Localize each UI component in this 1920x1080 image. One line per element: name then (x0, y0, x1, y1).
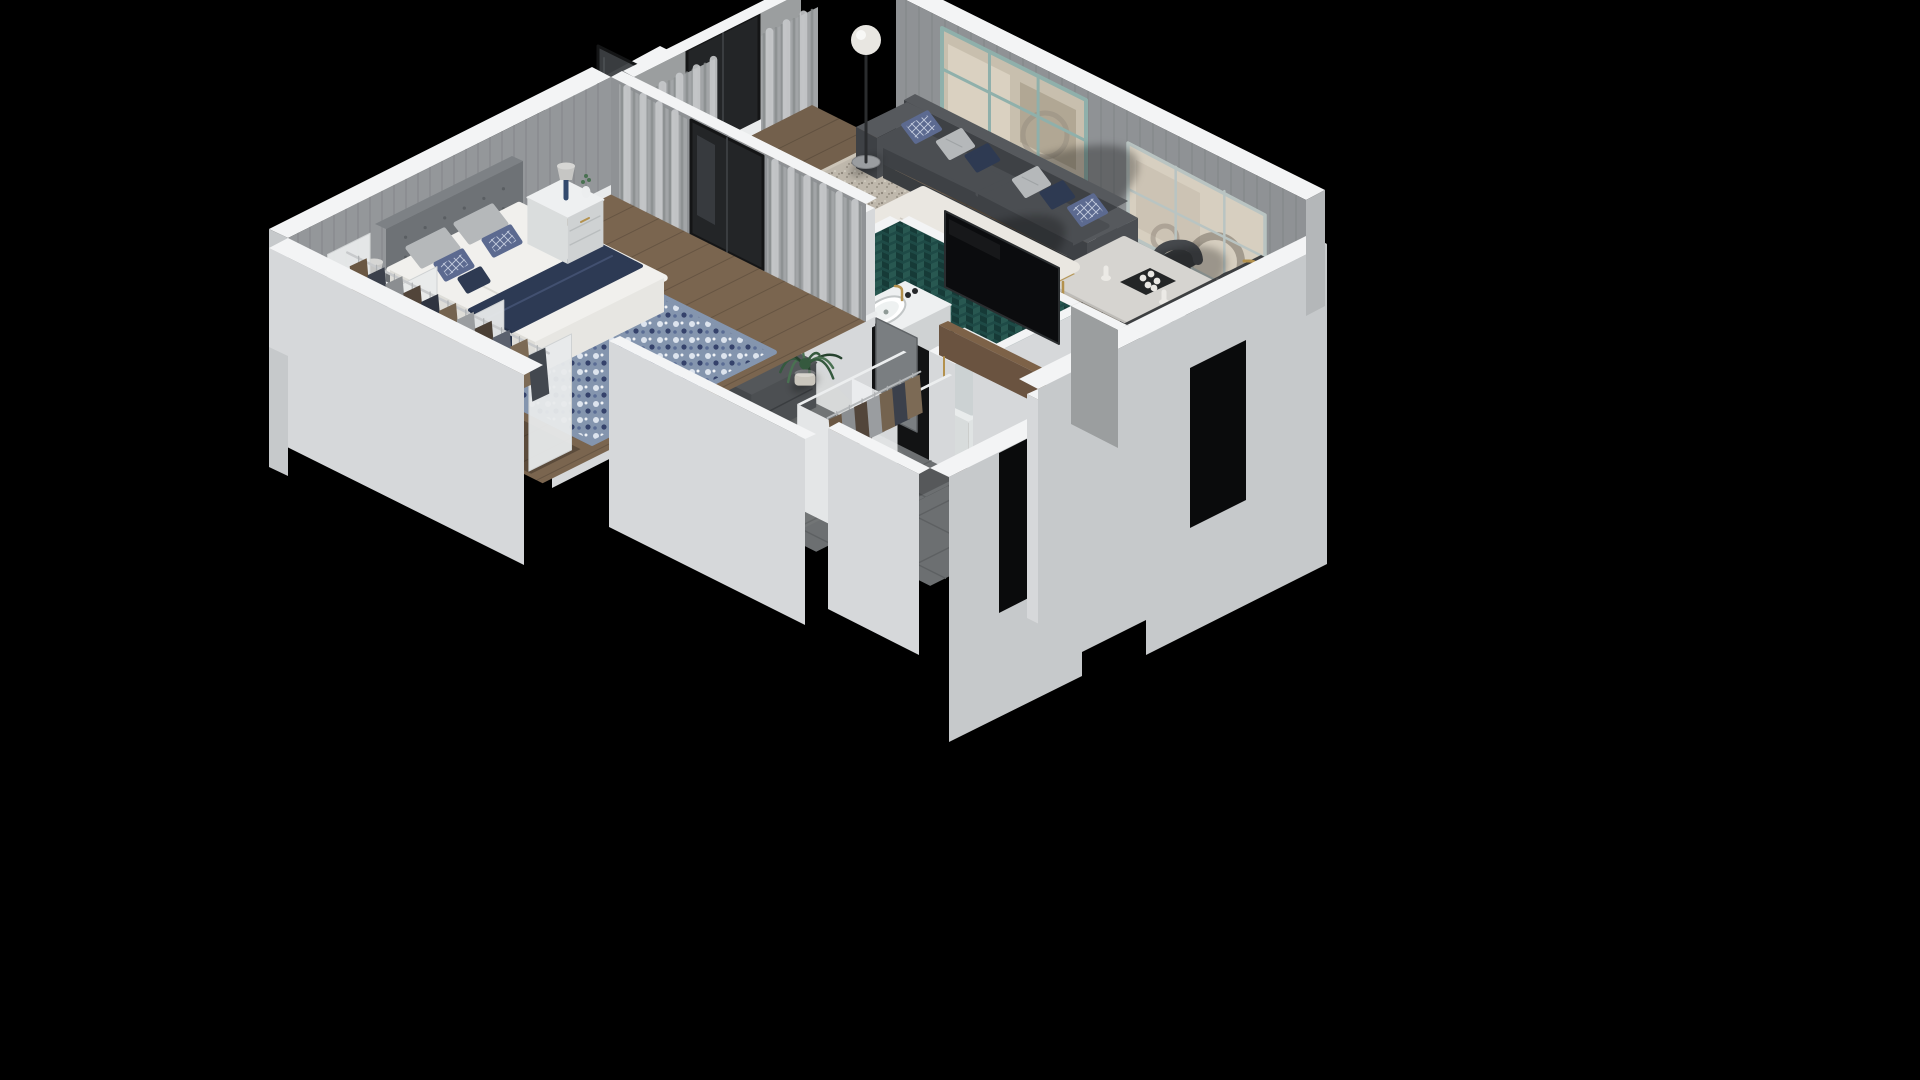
tuft-button (482, 197, 485, 200)
door-reflection (697, 135, 715, 225)
wardrobe-clothing (905, 375, 923, 420)
white-rose (1151, 285, 1158, 292)
vase-greenery (581, 180, 585, 184)
counter-speck (1216, 278, 1218, 280)
vase-greenery (587, 178, 591, 182)
vase-greenery (584, 174, 588, 178)
palm-crown (799, 358, 810, 369)
white-rose (1148, 271, 1155, 278)
tuft-button (502, 187, 505, 190)
soap-bottle (905, 292, 911, 298)
floorplan-render (0, 0, 1920, 1080)
kitchen-west-wall-face (1071, 306, 1118, 448)
white-rose (1145, 282, 1152, 289)
lamp-globe-highlight (856, 30, 866, 40)
white-rose (1154, 278, 1161, 285)
right-wall-end-cap (1306, 190, 1325, 316)
lamp-shade-top (557, 163, 575, 170)
vase (582, 186, 591, 198)
white-rose (1140, 275, 1147, 282)
sink-drain (884, 310, 889, 315)
soap-bottle (912, 288, 918, 294)
lamp-globe (851, 25, 881, 55)
render-stage (0, 0, 1920, 1080)
pot-rim (795, 370, 816, 378)
bedroom-west-exterior (269, 347, 288, 476)
kitchen-window-opening (1190, 340, 1246, 528)
tuft-button (443, 216, 446, 219)
tuft-button (424, 226, 427, 229)
tuft-button (404, 236, 407, 239)
tuft-button (463, 207, 466, 210)
